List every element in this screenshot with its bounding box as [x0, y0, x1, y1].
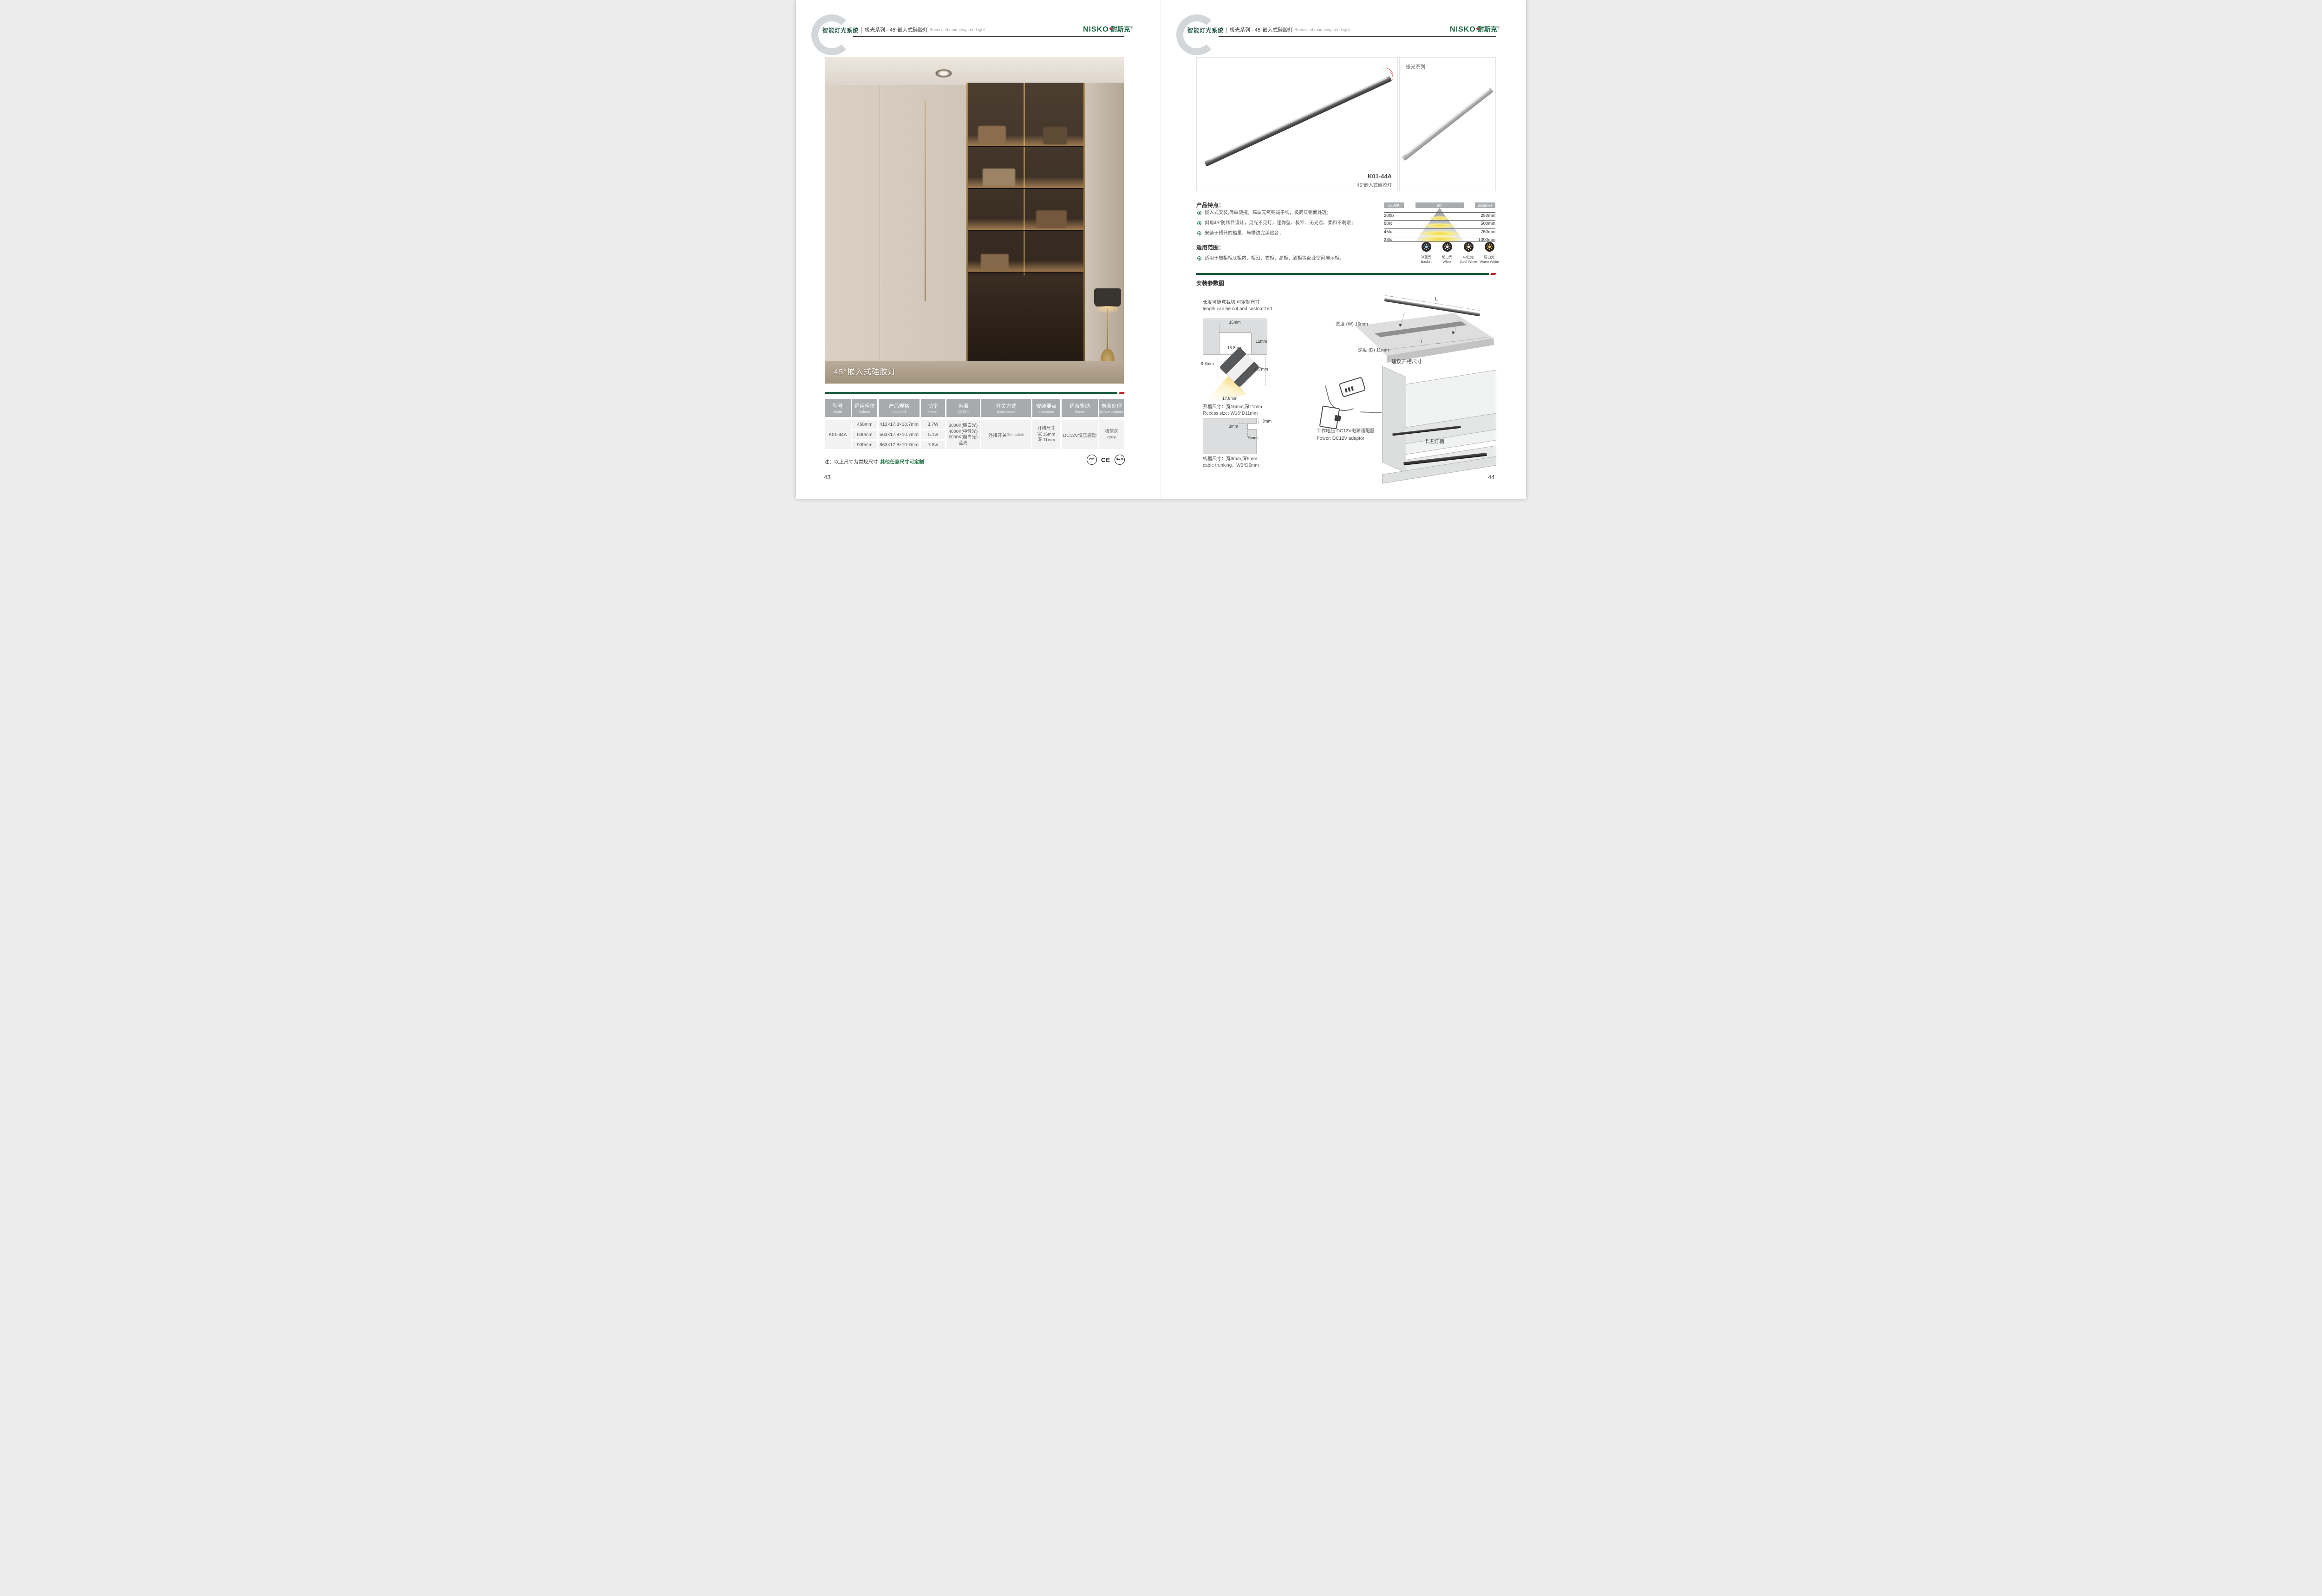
chart-gridline	[1384, 212, 1495, 213]
c-watermark-logo-right	[1176, 14, 1217, 55]
brand-logo: NISKO耐斯克®	[1083, 25, 1133, 34]
shelf-item	[1043, 127, 1067, 144]
sun-icon-cool-white	[1464, 242, 1474, 252]
lux-label: 33lx	[1384, 237, 1392, 242]
dim-line	[1259, 418, 1259, 423]
brand-logo: NISKO耐斯克®	[1450, 25, 1500, 34]
col-header-driver: 适合驱动Power	[1062, 399, 1098, 417]
table-row: 900mm	[852, 441, 877, 449]
page-number-right: 44	[1488, 474, 1494, 481]
certification-icons: CCC CE RoHS	[1087, 455, 1125, 465]
switch-cell: 外接开关/No switch	[981, 420, 1031, 449]
spec-table-body: K01-44A 450mm 600mm 900mm 413×17.8×10.7m…	[825, 420, 1124, 449]
target-bullet-icon	[1197, 211, 1201, 215]
brand-red-dot-icon	[1109, 27, 1112, 30]
distance-badge: distance	[1475, 202, 1495, 208]
cabinet-diagram: 卡进灯槽	[1379, 367, 1496, 483]
header-divider	[861, 27, 862, 33]
recess-size-zh: 开槽尺寸：宽16mm,深11mm	[1203, 404, 1262, 410]
product-model: K01-44A	[1357, 173, 1392, 180]
install-section-title: 安装参数图	[1196, 279, 1224, 287]
brand-red-dot-icon	[1476, 27, 1479, 30]
driver-cell: DC12V恒压驱动	[1062, 420, 1098, 449]
color-temp-label: 暖白光Warm White	[1476, 255, 1502, 264]
col-header-cct: 色温CCT(K)	[946, 399, 980, 417]
lamp-stem	[1107, 308, 1108, 351]
series-title: 极光系列 · 45°嵌入式硅胶灯	[865, 26, 928, 33]
shelf	[968, 188, 1083, 189]
dim-profile-left: 9.8mm	[1201, 361, 1214, 366]
distance-label: 500mm	[1481, 221, 1495, 226]
shelf-item	[981, 254, 1009, 270]
dim-line	[1220, 394, 1257, 394]
size-column: 413×17.8×10.7mm 563×17.8×10.7mm 863×17.8…	[879, 420, 920, 449]
target-bullet-icon	[1197, 256, 1201, 261]
page-title: 智能灯光系统	[1187, 26, 1224, 34]
length-label: L	[1421, 339, 1424, 345]
header-rule	[853, 36, 1124, 37]
ccc-cert-icon: CCC	[1087, 455, 1097, 465]
brand-logo-latin: NISKO	[1450, 26, 1476, 33]
plug-icon	[1334, 415, 1341, 422]
col-header-switch: 开关方式Switch mode	[981, 399, 1031, 417]
series-title: 极光系列 · 45°嵌入式硅胶灯	[1230, 26, 1293, 33]
cabinet-column: 450mm 600mm 900mm	[852, 420, 877, 449]
chart-gridline	[1384, 220, 1495, 221]
power-column: 3.7W 5.1w 7.8w	[921, 420, 945, 449]
install-cell: 开槽尺寸 宽 16mm 深 11mm	[1032, 420, 1060, 449]
features-title: 产品特点：	[1196, 201, 1224, 209]
catalog-spread: 智能灯光系统 极光系列 · 45°嵌入式硅胶灯 Recessed mountin…	[796, 0, 1526, 499]
spec-table-header: 型号Model 适用柜体Cabinet 产品规格L x D x H 功率Powe…	[825, 399, 1124, 417]
table-row: 450mm	[852, 420, 877, 429]
sun-icon-warm-white	[1485, 242, 1494, 252]
cct-cell: 3000K(暖白光) 4000K(中性光) 6000K(超白光) 蓝光	[946, 420, 980, 449]
table-row: 863×17.8×10.7mm	[879, 441, 920, 449]
power-spec-zh: 工作电压:DC12V电源适配器	[1317, 428, 1375, 435]
brand-logo-latin: NISKO	[1083, 26, 1109, 33]
page-number-left: 43	[824, 474, 830, 481]
table-row: 5.1w	[921, 430, 945, 439]
divider-green-right	[1196, 273, 1489, 275]
dim-trunk-left: 3mm	[1229, 424, 1238, 429]
target-bullet-icon	[1197, 221, 1201, 225]
board-caption: 建议开槽尺寸	[1391, 358, 1422, 365]
shelf-item	[983, 169, 1015, 186]
cct-badge: 6500K	[1384, 202, 1404, 208]
dim-line	[1239, 423, 1247, 424]
wardrobe-right-panel	[1085, 83, 1124, 384]
series-tag: 极光系列	[1406, 63, 1425, 70]
led-profile-highlight	[1209, 77, 1387, 161]
dim-line	[1218, 354, 1218, 381]
brand-logo-cn: 耐斯克	[1478, 26, 1497, 33]
series-subtitle-en: Recessed mounting Led Light	[1294, 27, 1350, 32]
trunk-size-en: cable trunking：W3*D5mm	[1203, 463, 1259, 469]
shelf	[968, 272, 1083, 273]
adaptor-vents	[1344, 386, 1354, 393]
table-row: 563×17.8×10.7mm	[879, 430, 920, 439]
distance-label: 1000mm	[1478, 237, 1495, 242]
chart-gridline	[1384, 228, 1495, 229]
profile-render-highlight	[1406, 89, 1490, 155]
col-header-surface: 表面处理Surface treatment	[1099, 399, 1124, 417]
dim-trunk-top: 3mm	[1262, 419, 1272, 423]
feature-item: 斜角45°防炫目设计，见光不见灯，迷你型、极窄、无光点、柔和不刺眼；	[1197, 220, 1383, 226]
surface-cell: 极简灰 grey	[1099, 420, 1124, 449]
beam-angle-badge: 90°	[1415, 202, 1464, 208]
slot-board-diagram: L 宽度 (W) 16mm 深度 (D) 11mm L 建议开槽尺寸	[1335, 297, 1497, 367]
dim-profile-right: 10.7mm	[1253, 367, 1268, 371]
shelf-item	[978, 126, 1006, 144]
dim-recess-top: 16mm	[1219, 320, 1251, 325]
lux-label: 200lx	[1384, 213, 1395, 218]
length-label: L	[1435, 296, 1438, 302]
sun-icon-white	[1442, 242, 1452, 252]
application-title: 适用范围：	[1196, 243, 1224, 251]
shelf	[968, 146, 1083, 147]
dim-trunk-bottom: 5mm	[1248, 436, 1258, 440]
power-spec-en: Power: DC12V adaptor	[1317, 436, 1364, 442]
light-distribution-chart: 6500K 90° distance 200lx 88lx 45lx 33lx …	[1384, 202, 1495, 241]
cut-note-en: length can be cut and customized	[1203, 306, 1272, 313]
registered-mark-icon: ®	[1497, 26, 1500, 30]
product-label: K01-44A 45°嵌入式硅胶灯	[1357, 173, 1392, 188]
dim-line	[1247, 429, 1248, 437]
cabinet-back	[1404, 370, 1496, 455]
recess-size-en: Recess size: W16*D11mm	[1203, 410, 1258, 417]
size-note: 注：以上尺寸为常规尺寸 其他任意尺寸可定制	[824, 457, 924, 466]
board-depth-label: 深度 (D) 11mm	[1358, 347, 1389, 354]
feature-item: 嵌入式安装,简单便捷，高端无氧铜端子线，极简灰铝面处理；	[1197, 210, 1374, 216]
table-row: 600mm	[852, 430, 877, 439]
page-gutter	[1161, 0, 1161, 499]
col-header-install: 安装要点Installation	[1032, 399, 1060, 417]
cabinet-left-wall	[1382, 366, 1406, 473]
c-watermark-logo-left	[811, 14, 852, 55]
col-header-model: 型号Model	[825, 399, 851, 417]
lux-label: 45lx	[1384, 229, 1392, 235]
shelf	[968, 230, 1083, 231]
divider-red-left	[1119, 392, 1125, 394]
ce-cert-icon: CE	[1101, 456, 1110, 463]
spec-table: 型号Model 适用柜体Cabinet 产品规格L x D x H 功率Powe…	[825, 399, 1124, 449]
door-seam	[880, 85, 880, 384]
divider-red-right	[1490, 273, 1496, 275]
product-image-main: K01-44A 45°嵌入式硅胶灯	[1196, 57, 1398, 191]
lamp-shade	[1094, 288, 1121, 307]
model-cell: K01-44A	[825, 420, 851, 449]
product-photo: 45°嵌入式硅胶灯	[825, 57, 1124, 384]
board-width-label: 宽度 (W) 16mm	[1336, 321, 1368, 328]
gold-handle	[925, 101, 926, 301]
wardrobe-left-doors	[825, 85, 966, 384]
target-bullet-icon	[1197, 231, 1201, 235]
dim-line	[1251, 324, 1251, 332]
product-name: 45°嵌入式硅胶灯	[1357, 181, 1392, 188]
application-item: 适用于橱柜柜底柜内、柜沿、衣柜、高柜、酒柜等商业空间展示柜。	[1197, 255, 1411, 261]
header-divider	[1226, 27, 1227, 33]
trunk-slot	[1247, 423, 1257, 430]
col-header-cabinet: 适用柜体Cabinet	[852, 399, 877, 417]
feature-item: 安装于预开的槽里，与槽边完美贴合；	[1197, 230, 1374, 236]
page-header-left: 智能灯光系统 极光系列 · 45°嵌入式硅胶灯 Recessed mountin…	[822, 26, 985, 33]
clip-label: 卡进灯槽	[1424, 437, 1444, 445]
distance-label: 750mm	[1481, 229, 1495, 235]
shelf-item	[1036, 210, 1067, 228]
col-header-size: 产品规格L x D x H	[879, 399, 920, 417]
lux-label: 88lx	[1384, 221, 1392, 226]
page-header-right: 智能灯光系统 极光系列 · 45°嵌入式硅胶灯 Recessed mountin…	[1187, 26, 1350, 33]
wall-socket	[1319, 405, 1340, 429]
light-pool	[1422, 223, 1457, 228]
profile-render-bar	[1402, 88, 1493, 161]
photo-caption: 45°嵌入式硅胶灯	[834, 365, 896, 377]
sun-icon-ice-blue	[1422, 242, 1431, 252]
table-row: 7.8w	[921, 441, 945, 449]
col-header-power: 功率Power	[921, 399, 945, 417]
divider-green-left	[825, 392, 1117, 394]
table-row: 413×17.8×10.7mm	[879, 420, 920, 429]
dim-profile-bottom: 17.8mm	[1222, 396, 1238, 401]
series-subtitle-en: Recessed mounting Led Light	[929, 27, 985, 32]
header-rule	[1219, 36, 1496, 37]
distance-label: 250mm	[1481, 213, 1495, 218]
profile-section-diagram: 9.8mm 10.7mm 17.8mm	[1201, 349, 1283, 405]
cut-note-zh: 长度可随意裁切,可定制尺寸	[1203, 300, 1260, 306]
dim-line	[1219, 328, 1251, 328]
table-row: 3.7W	[921, 420, 945, 429]
registered-mark-icon: ®	[1130, 26, 1133, 30]
page-title: 智能灯光系统	[822, 26, 859, 34]
dim-recess-side: 11mm	[1256, 339, 1267, 344]
led-profile-bar	[1384, 298, 1481, 316]
product-image-detail: 极光系列	[1399, 57, 1496, 191]
trunk-size-zh: 线槽尺寸：宽3mm,深5mm	[1203, 456, 1257, 463]
downlight-icon	[935, 69, 952, 78]
rohs-cert-icon: RoHS	[1115, 455, 1125, 465]
brand-logo-cn: 耐斯克	[1111, 26, 1130, 33]
trunking-diagram: 3mm 3mm 5mm	[1203, 418, 1282, 455]
